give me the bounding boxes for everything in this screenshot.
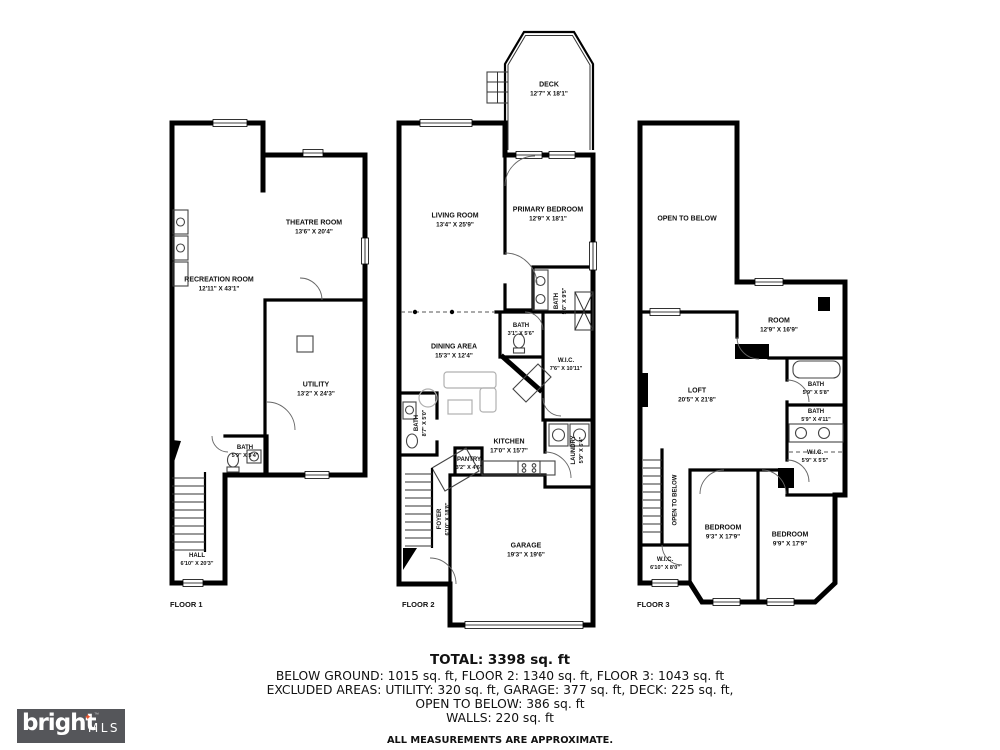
floor3-stairs: [643, 460, 662, 532]
room-label-foyer: FOYER 6'10" X 18'8": [437, 503, 451, 536]
room-label-bath3-upper: BATH 5'9" X 5'8": [803, 382, 830, 396]
area-summary: TOTAL: 3398 sq. ft BELOW GROUND: 1015 sq…: [0, 652, 1000, 746]
summary-line-floors: BELOW GROUND: 1015 sq. ft, FLOOR 2: 1340…: [0, 670, 1000, 684]
room-label-hall: HALL 6'10" X 20'3": [181, 553, 214, 567]
summary-line-walls: WALLS: 220 sq. ft: [0, 712, 1000, 726]
floor3-fixtures: [789, 361, 843, 442]
floor3-tag: FLOOR 3: [637, 600, 670, 609]
total-area: TOTAL: 3398 sq. ft: [0, 652, 1000, 668]
floor1-plan: [172, 120, 369, 587]
room-label-garage: GARAGE 19'3" X 19'6": [507, 543, 545, 560]
room-label-bath3-lower: BATH 5'9" X 4'11": [801, 409, 831, 423]
floor1-fixtures: [173, 210, 313, 472]
floor-plan-page: THEATRE ROOM 13'6" X 20'4" RECREATION RO…: [0, 0, 1000, 750]
room-label-primary-bath: BATH 5'6" X 9'5": [554, 288, 568, 315]
room-label-wic-bottom: W.I.C. 6'10" X 8'0": [650, 557, 680, 571]
room-label-kitchen: KITCHEN 17'0" X 15'7": [490, 439, 528, 456]
room-label-theatre-room: THEATRE ROOM 13'6" X 20'4": [286, 220, 342, 237]
summary-line-excluded: EXCLUDED AREAS: UTILITY: 320 sq. ft, GAR…: [0, 684, 1000, 698]
room-label-bath-small: BATH 3'1" X 5'6": [508, 323, 535, 337]
room-label-laundry: LAUNDRY 5'9" X 6'4": [571, 435, 585, 464]
trademark-symbol: ™: [94, 712, 99, 718]
disclaimer-text: ALL MEASUREMENTS ARE APPROXIMATE.: [0, 735, 1000, 746]
room-label-room: ROOM 12'9" X 16'9": [760, 318, 798, 335]
floor1-stairs: [172, 440, 205, 552]
room-label-recreation-room: RECREATION ROOM 12'11" X 43'1": [184, 277, 253, 294]
room-label-open-to-below-stair: OPEN TO BELOW: [672, 475, 680, 526]
room-label-wic-f2: W.I.C. 7'6" X 10'11": [550, 358, 583, 372]
floor2-plan: [399, 32, 597, 629]
room-label-pantry: PANTRY 3'2" X 4'6": [456, 457, 483, 471]
room-label-living-room: LIVING ROOM 13'4" X 25'9": [431, 213, 478, 230]
mls-label: MLS: [88, 721, 120, 735]
room-label-deck: DECK 12'7" X 18'1": [530, 82, 568, 99]
floor2-stairs: [403, 468, 432, 570]
room-label-primary-bedroom: PRIMARY BEDROOM 12'9" X 18'1": [513, 207, 583, 224]
floor-plan-drawing: [0, 0, 1000, 750]
room-label-dining-area: DINING AREA 15'3" X 12'4": [431, 344, 477, 361]
floor1-tag: FLOOR 1: [170, 600, 203, 609]
room-label-open-to-below: OPEN TO BELOW: [657, 216, 716, 225]
floor3-plan: [640, 123, 845, 606]
floor2-tag: FLOOR 2: [402, 600, 435, 609]
room-label-bedroom-right: BEDROOM 9'9" X 17'9": [772, 532, 809, 549]
room-label-wic-right: W.I.C. 5'9" X 5'5": [802, 450, 829, 464]
room-label-utility: UTILITY 13'2" X 24'3": [297, 382, 335, 399]
room-label-loft: LOFT 20'5" X 21'8": [678, 388, 716, 405]
room-label-bath-left: BATH 8'7" X 5'0": [414, 410, 428, 437]
room-label-bath-f1: BATH 5'9" X 5'4": [232, 445, 259, 459]
room-label-bedroom-left: BEDROOM 9'3" X 17'9": [705, 525, 742, 542]
brightmls-logo: bright ✦ ™ MLS: [17, 709, 125, 743]
summary-line-open-to-below: OPEN TO BELOW: 386 sq. ft: [0, 698, 1000, 712]
